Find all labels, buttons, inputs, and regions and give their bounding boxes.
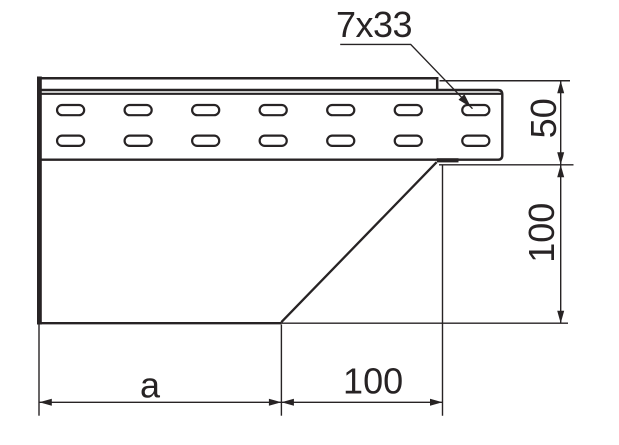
svg-text:50: 50 <box>523 98 564 138</box>
svg-text:a: a <box>140 364 161 405</box>
svg-text:100: 100 <box>521 203 562 263</box>
svg-text:7x33: 7x33 <box>336 4 412 45</box>
svg-text:100: 100 <box>343 361 403 402</box>
